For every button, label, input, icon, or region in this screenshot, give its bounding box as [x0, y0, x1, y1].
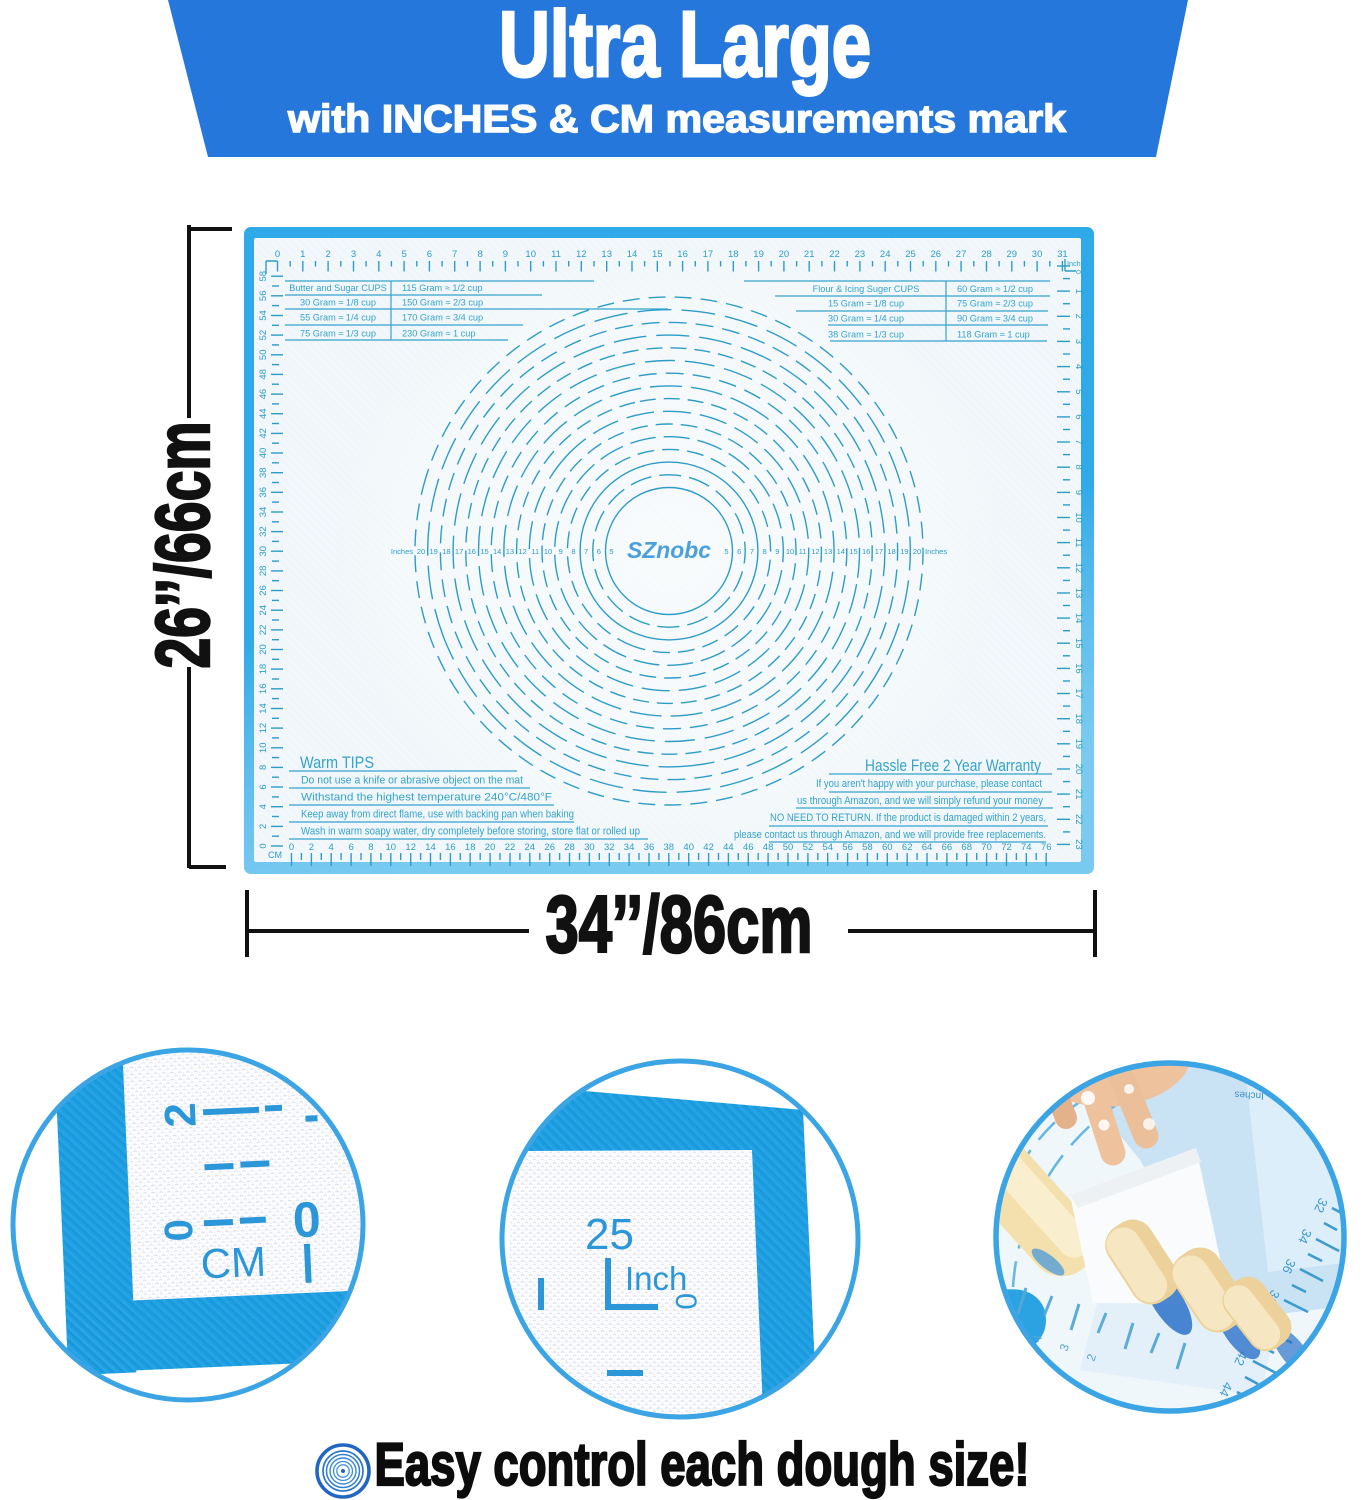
svg-text:26: 26 [544, 842, 555, 853]
svg-text:60: 60 [882, 842, 893, 853]
svg-text:54: 54 [822, 842, 833, 853]
svg-text:28: 28 [564, 842, 575, 853]
svg-text:38: 38 [664, 842, 675, 853]
svg-text:Wash in warm soapy water, dry: Wash in warm soapy water, dry completely… [301, 826, 640, 838]
svg-text:25: 25 [585, 1210, 634, 1259]
svg-text:68: 68 [961, 842, 972, 853]
svg-text:9: 9 [559, 547, 563, 556]
svg-text:6: 6 [597, 547, 601, 556]
svg-text:24: 24 [525, 842, 536, 853]
svg-text:20: 20 [417, 547, 425, 556]
svg-text:Keep away from direct flame, u: Keep away from direct flame, use with ba… [301, 809, 574, 821]
svg-text:10: 10 [786, 547, 794, 556]
svg-text:22: 22 [1073, 814, 1084, 825]
svg-text:9: 9 [503, 249, 508, 260]
svg-text:17: 17 [455, 547, 463, 556]
svg-text:15: 15 [849, 547, 857, 556]
svg-text:with INCHES & CM measurements: with INCHES & CM measurements mark [287, 98, 1066, 141]
svg-text:54: 54 [258, 310, 269, 321]
svg-text:6: 6 [427, 249, 432, 260]
svg-text:30: 30 [584, 842, 595, 853]
svg-text:13: 13 [601, 249, 612, 260]
svg-text:Ultra Large: Ultra Large [499, 0, 871, 96]
svg-text:70: 70 [981, 842, 992, 853]
svg-text:Inch: Inch [625, 1260, 687, 1297]
svg-text:7: 7 [452, 249, 457, 260]
svg-text:55 Gram ≈ 1/4 cup: 55 Gram ≈ 1/4 cup [300, 313, 376, 323]
svg-text:6: 6 [1073, 414, 1084, 419]
svg-text:us through Amazon, and we wil: us through Amazon, and we will simply re… [797, 795, 1043, 807]
svg-text:10: 10 [525, 249, 536, 260]
svg-text:76: 76 [1041, 842, 1052, 853]
svg-text:If you aren't happy with your: If you aren't happy with your purchase, … [816, 778, 1042, 790]
svg-text:8: 8 [763, 547, 767, 556]
svg-text:17: 17 [875, 547, 883, 556]
svg-text:20: 20 [913, 547, 921, 556]
svg-text:6: 6 [258, 784, 269, 789]
svg-text:5: 5 [1003, 1324, 1019, 1335]
svg-text:170 Gram ≈ 3/4 cup: 170 Gram ≈ 3/4 cup [402, 313, 483, 323]
svg-text:6: 6 [348, 842, 353, 853]
svg-text:0: 0 [275, 249, 280, 260]
svg-text:5: 5 [609, 547, 613, 556]
svg-text:18: 18 [258, 664, 269, 675]
svg-text:0: 0 [258, 843, 269, 848]
svg-text:12: 12 [811, 547, 819, 556]
svg-text:0: 0 [157, 1218, 202, 1242]
svg-text:1: 1 [1073, 288, 1084, 293]
svg-text:72: 72 [1001, 842, 1012, 853]
svg-text:42: 42 [703, 842, 714, 853]
svg-text:26: 26 [258, 585, 269, 596]
svg-text:27: 27 [956, 249, 967, 260]
svg-text:16: 16 [445, 842, 456, 853]
svg-text:14: 14 [1073, 613, 1084, 624]
svg-text:12: 12 [518, 547, 526, 556]
svg-text:8: 8 [258, 765, 269, 770]
svg-text:15: 15 [480, 547, 488, 556]
svg-text:56: 56 [258, 291, 269, 302]
svg-text:40: 40 [683, 842, 694, 853]
svg-text:60 Gram ≈ 1/2 cup: 60 Gram ≈ 1/2 cup [957, 284, 1033, 294]
svg-text:7: 7 [750, 547, 754, 556]
svg-text:16: 16 [258, 684, 269, 695]
svg-text:10: 10 [386, 842, 397, 853]
svg-text:74: 74 [1021, 842, 1032, 853]
svg-text:30: 30 [258, 546, 269, 557]
svg-text:7: 7 [584, 547, 588, 556]
svg-text:22: 22 [505, 842, 516, 853]
svg-text:14: 14 [493, 547, 501, 556]
svg-text:48: 48 [763, 842, 774, 853]
svg-text:20: 20 [258, 644, 269, 655]
svg-text:44: 44 [723, 842, 734, 853]
svg-text:23: 23 [855, 249, 866, 260]
svg-text:18: 18 [442, 547, 450, 556]
svg-text:16: 16 [468, 547, 476, 556]
svg-text:40: 40 [258, 448, 269, 459]
svg-text:52: 52 [258, 330, 269, 341]
svg-text:2: 2 [1073, 314, 1084, 319]
svg-text:8: 8 [1073, 465, 1084, 470]
svg-text:17: 17 [703, 249, 714, 260]
svg-text:19: 19 [430, 547, 438, 556]
svg-text:12: 12 [405, 842, 416, 853]
svg-text:22: 22 [258, 625, 269, 636]
svg-text:4: 4 [329, 842, 334, 853]
svg-text:17: 17 [1073, 688, 1084, 699]
svg-text:Hassle Free 2 Year Warranty: Hassle Free 2 Year Warranty [865, 757, 1042, 775]
svg-text:Inches: Inches [391, 547, 413, 556]
svg-text:18: 18 [465, 842, 476, 853]
svg-text:4: 4 [258, 804, 269, 809]
svg-text:75 Gram ≈ 2/3 cup: 75 Gram ≈ 2/3 cup [957, 299, 1033, 309]
svg-text:Withstand the highest temperat: Withstand the highest temperature 240°C/… [301, 792, 552, 804]
svg-text:11: 11 [799, 547, 807, 556]
svg-text:25: 25 [905, 249, 916, 260]
svg-text:15 Gram ≈ 1/8 cup: 15 Gram ≈ 1/8 cup [828, 299, 904, 309]
svg-text:36: 36 [258, 487, 269, 498]
svg-text:5: 5 [401, 249, 406, 260]
svg-text:12: 12 [1073, 563, 1084, 574]
svg-text:24: 24 [258, 605, 269, 616]
svg-text:30: 30 [1032, 249, 1043, 260]
svg-text:10: 10 [1073, 512, 1084, 523]
svg-text:13: 13 [824, 547, 832, 556]
svg-text:14: 14 [258, 703, 269, 714]
svg-text:0: 0 [289, 842, 294, 853]
svg-text:21: 21 [804, 249, 815, 260]
svg-text:Warm TIPS: Warm TIPS [300, 754, 374, 772]
svg-text:11: 11 [531, 547, 539, 556]
svg-text:20: 20 [485, 842, 496, 853]
svg-text:2: 2 [309, 842, 314, 853]
svg-text:13: 13 [506, 547, 514, 556]
svg-text:8: 8 [368, 842, 373, 853]
svg-text:3: 3 [1073, 339, 1084, 344]
svg-text:Easy control each dough size!: Easy control each dough size! [375, 1431, 1030, 1498]
svg-text:19: 19 [1073, 739, 1084, 750]
svg-text:0: 0 [292, 1191, 322, 1248]
svg-text:15: 15 [652, 249, 663, 260]
svg-text:7: 7 [1073, 439, 1084, 444]
svg-text:18: 18 [887, 547, 895, 556]
svg-text:13: 13 [1073, 588, 1084, 599]
svg-text:14: 14 [425, 842, 436, 853]
svg-text:0: 0 [669, 1293, 702, 1310]
svg-text:50: 50 [258, 350, 269, 361]
svg-text:16: 16 [1073, 663, 1084, 674]
svg-text:8: 8 [477, 249, 482, 260]
svg-text:52: 52 [803, 842, 814, 853]
svg-text:CM: CM [268, 850, 282, 860]
svg-text:2: 2 [325, 249, 330, 260]
svg-text:22: 22 [829, 249, 840, 260]
svg-text:18: 18 [728, 249, 739, 260]
svg-text:32: 32 [604, 842, 615, 853]
svg-text:12: 12 [576, 249, 587, 260]
svg-text:230 Gram ≈ 1 cup: 230 Gram ≈ 1 cup [402, 329, 475, 339]
svg-text:24: 24 [880, 249, 891, 260]
svg-text:10: 10 [258, 743, 269, 754]
svg-text:please contact us through Amaz: please contact us through Amazon, and we… [734, 829, 1046, 841]
svg-text:12: 12 [258, 723, 269, 734]
svg-text:9: 9 [775, 547, 779, 556]
svg-text:4: 4 [1073, 364, 1084, 369]
svg-text:30 Gram ≈ 1/4 cup: 30 Gram ≈ 1/4 cup [828, 314, 904, 324]
svg-text:66: 66 [942, 842, 953, 853]
svg-text:3: 3 [351, 249, 356, 260]
svg-text:48: 48 [258, 369, 269, 380]
svg-text:75 Gram ≈ 1/3 cup: 75 Gram ≈ 1/3 cup [300, 329, 376, 339]
svg-text:34’’/86cm: 34’’/86cm [546, 880, 813, 970]
svg-text:90 Gram ≈ 3/4 cup: 90 Gram ≈ 3/4 cup [957, 314, 1033, 324]
svg-text:32: 32 [258, 526, 269, 537]
svg-text:8: 8 [571, 547, 575, 556]
svg-text:50: 50 [783, 842, 794, 853]
svg-text:44: 44 [258, 408, 269, 419]
svg-text:16: 16 [677, 249, 688, 260]
svg-text:38 Gram ≈ 1/3 cup: 38 Gram ≈ 1/3 cup [828, 330, 904, 340]
svg-text:56: 56 [842, 842, 853, 853]
svg-text:10: 10 [544, 547, 552, 556]
svg-text:Inches: Inches [925, 547, 947, 556]
svg-text:46: 46 [743, 842, 754, 853]
svg-text:4: 4 [376, 249, 381, 260]
svg-text:Flour & Icing Suger CUPS: Flour & Icing Suger CUPS [813, 284, 920, 294]
svg-text:20: 20 [1073, 764, 1084, 775]
svg-text:30 Gram ≈ 1/8 cup: 30 Gram ≈ 1/8 cup [300, 298, 376, 308]
svg-text:58: 58 [862, 842, 873, 853]
svg-text:1: 1 [300, 249, 305, 260]
svg-text:11: 11 [1073, 538, 1084, 548]
svg-text:15: 15 [1073, 638, 1084, 649]
svg-text:36: 36 [644, 842, 655, 853]
svg-text:58: 58 [258, 271, 269, 282]
svg-text:26: 26 [931, 249, 942, 260]
svg-text:62: 62 [902, 842, 913, 853]
svg-text:64: 64 [922, 842, 933, 853]
svg-text:2: 2 [258, 824, 269, 829]
svg-text:46: 46 [258, 389, 269, 400]
svg-text:28: 28 [981, 249, 992, 260]
svg-text:42: 42 [258, 428, 269, 439]
svg-text:28: 28 [258, 566, 269, 577]
svg-text:Butter and Sugar CUPS: Butter and Sugar CUPS [289, 283, 387, 293]
svg-text:19: 19 [900, 547, 908, 556]
svg-text:5: 5 [724, 547, 728, 556]
svg-text:16: 16 [862, 547, 870, 556]
svg-text:34: 34 [258, 507, 269, 518]
svg-text:SZnobc: SZnobc [627, 537, 711, 563]
svg-text:23: 23 [1073, 839, 1084, 850]
svg-text:19: 19 [753, 249, 764, 260]
svg-text:38: 38 [258, 467, 269, 478]
svg-text:CM: CM [200, 1238, 267, 1288]
svg-text:18: 18 [1073, 713, 1084, 724]
svg-text:118 Gram ≈ 1 cup: 118 Gram ≈ 1 cup [957, 330, 1030, 340]
svg-text:NO NEED TO RETURN. If the prod: NO NEED TO RETURN. If the product is dam… [770, 812, 1046, 824]
svg-text:5: 5 [1073, 389, 1084, 394]
svg-text:29: 29 [1007, 249, 1018, 260]
svg-text:21: 21 [1073, 789, 1084, 800]
svg-text:14: 14 [627, 249, 638, 260]
svg-text:11: 11 [551, 249, 561, 260]
svg-text:Do not use a knife or abrasive: Do not use a knife or abrasive object on… [301, 775, 523, 787]
svg-text:26’’/66cm: 26’’/66cm [141, 422, 226, 669]
svg-text:115 Gram ≈ 1/2 cup: 115 Gram ≈ 1/2 cup [402, 283, 482, 293]
svg-text:0: 0 [1074, 270, 1081, 274]
svg-text:9: 9 [1073, 490, 1084, 495]
svg-text:150 Gram ≈ 2/3 cup: 150 Gram ≈ 2/3 cup [402, 298, 483, 308]
svg-text:14: 14 [837, 547, 845, 556]
svg-text:20: 20 [779, 249, 790, 260]
svg-text:34: 34 [624, 842, 635, 853]
svg-text:6: 6 [737, 547, 741, 556]
svg-text:2: 2 [156, 1102, 206, 1129]
